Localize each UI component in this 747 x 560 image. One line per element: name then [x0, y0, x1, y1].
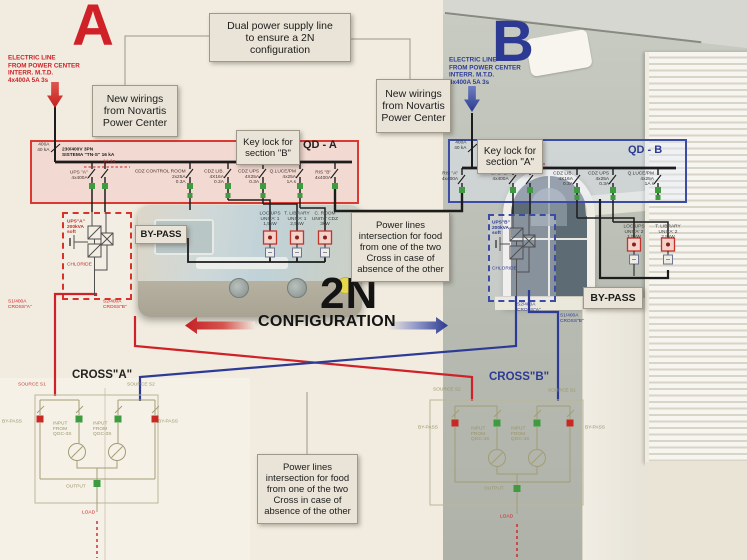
- qd-a-breaker-label-2: CDZ LIB. 4X16A 0.3A: [204, 169, 224, 185]
- ups-a-brand-label: CHLORIDE: [67, 262, 92, 267]
- qd-b-breaker-label-2: CDZ LIB. 4X16A 0.3A: [553, 171, 573, 187]
- qd-b-incomer-label: 400A 40 kA: [454, 140, 466, 150]
- cross-b-bypass-right: BY-PASS: [585, 425, 605, 430]
- cross-a-load-label: LOAD: [82, 510, 95, 515]
- letter-a-label: A: [72, 0, 114, 59]
- cross-a-bypass-left: BY-PASS: [2, 419, 22, 424]
- diagram-page: A ELECTRIC LINE FROM POWER CENTER INTERR…: [0, 0, 747, 560]
- cross-a-input-left: INPUT FROM QGC-3S: [53, 421, 71, 437]
- qd-a-bus-label: 230/400V 3PN SISTEMA "TN-S" 16 kA: [62, 147, 114, 157]
- down-arrow-a-icon: [47, 82, 63, 108]
- qd-a-incomer-label: 400A 40 kA: [37, 142, 49, 152]
- cross-a-source-right: SOURCE S2: [127, 382, 155, 387]
- lower-left-wall: [0, 378, 250, 560]
- cross-b-output-label: OUTPUT: [484, 486, 504, 491]
- load-b-label-0: LOC.UPS UNITA' 2 1,5kW: [616, 224, 652, 240]
- cross-b-bypass-left: BY-PASS: [418, 425, 438, 430]
- arrow-right-blue: [388, 317, 448, 334]
- qd-a-breaker-label-5: RIS "B" 4x400A: [315, 170, 331, 180]
- cross-b-load-label: LOAD: [500, 514, 513, 519]
- photo-fan-1: [229, 278, 249, 298]
- electric-line-b-label: ELECTRIC LINE FROM POWER CENTER INTERR. …: [449, 56, 521, 86]
- wall-corner-line: [104, 388, 106, 560]
- new-wirings-note-b: New wirings from Novartis Power Center: [376, 79, 451, 133]
- load-b-label-1: T. LIBRARY UNITA' 2 2,5kW: [650, 224, 686, 240]
- qd-b-breaker-label-0: RIS "A" 4x400A: [442, 171, 458, 181]
- arrow-left-red: [185, 317, 255, 334]
- keylock-note-qd-a: Key lock for section "B": [236, 130, 300, 165]
- louver-shutter: [645, 52, 747, 464]
- cross-b-source-right: SOURCE S1: [548, 388, 576, 393]
- feeder-a-s2-label: S2/400A CROSS"B": [103, 299, 127, 309]
- qd-b-breaker-label-4: Q.LUCE/PM 4x25A 1A s: [628, 171, 654, 187]
- photo-equipment-bar: [196, 257, 288, 269]
- qd-a-breaker-label-4: Q.LUCE/PM 4x25A 1A s: [270, 169, 296, 185]
- cross-b-input-left: INPUT FROM QGC-3S: [471, 426, 489, 442]
- configuration-caption: CONFIGURATION: [258, 313, 396, 331]
- keylock-note-qd-b: Key lock for section "A": [477, 139, 543, 174]
- feeder-b-s1-label: S1/400A CROSS"B": [560, 313, 584, 323]
- ups-b-name-label: UPS"B" 200kVA soft: [492, 220, 510, 236]
- dual-supply-note: Dual power supply line to ensure a 2N co…: [209, 13, 351, 62]
- feeder-a-s1-label: S1/400A CROSS"A": [8, 299, 32, 309]
- cross-a-input-right: INPUT FROM QGC-3S: [93, 421, 111, 437]
- qd-a-breaker-label-0: UPS "A" 4x400A: [70, 170, 88, 180]
- cross-a-output-label: OUTPUT: [66, 484, 86, 489]
- feeder-b-s2-label: S2/400A CROSS"A": [517, 302, 541, 312]
- qd-a-title: QD - A: [303, 139, 337, 151]
- ups-a-name-label: UPS"A" 200kVA soft: [67, 219, 85, 235]
- intersection-note-bottom: Power lines intersection for food from o…: [257, 454, 358, 524]
- photo-fan-2: [287, 278, 307, 298]
- cross-b-title: CROSS"B": [489, 371, 549, 384]
- cross-a-bypass-right: BY-PASS: [158, 419, 178, 424]
- cross-a-title: CROSS"A": [72, 369, 132, 382]
- cross-b-input-right: INPUT FROM QGC-3S: [511, 426, 529, 442]
- electric-line-a-label: ELECTRIC LINE FROM POWER CENTER INTERR. …: [8, 54, 80, 84]
- qd-a-breaker-label-1: CDZ CONTROL ROOM 2x25A 0.3A: [135, 169, 186, 185]
- qd-b-breaker-label-3: CDZ UPS 4x25A 0.3A: [588, 171, 609, 187]
- lower-right-wall: [645, 462, 747, 560]
- qd-b-title: QD - B: [628, 144, 662, 156]
- cross-b-source-left: SOURCE S2: [433, 387, 461, 392]
- qd-a-interlock-label: 1A 1s: [103, 159, 115, 164]
- intersection-note-right: Power lines intersection for food from o…: [351, 212, 450, 282]
- cross-a-source-left: SOURCE S1: [18, 382, 46, 387]
- bypass-a-label: BY-PASS: [135, 225, 187, 244]
- load-a-label-2: C. ROOM UNITA' CDZ 3kW: [307, 211, 343, 227]
- new-wirings-note-a: New wirings from Novartis Power Center: [92, 85, 178, 137]
- bypass-b-label: BY-PASS: [583, 287, 643, 309]
- ups-b-brand-label: CHLORIDE: [492, 266, 517, 271]
- qd-a-breaker-label-3: CDZ UPS 4X25A 0.3A: [238, 169, 259, 185]
